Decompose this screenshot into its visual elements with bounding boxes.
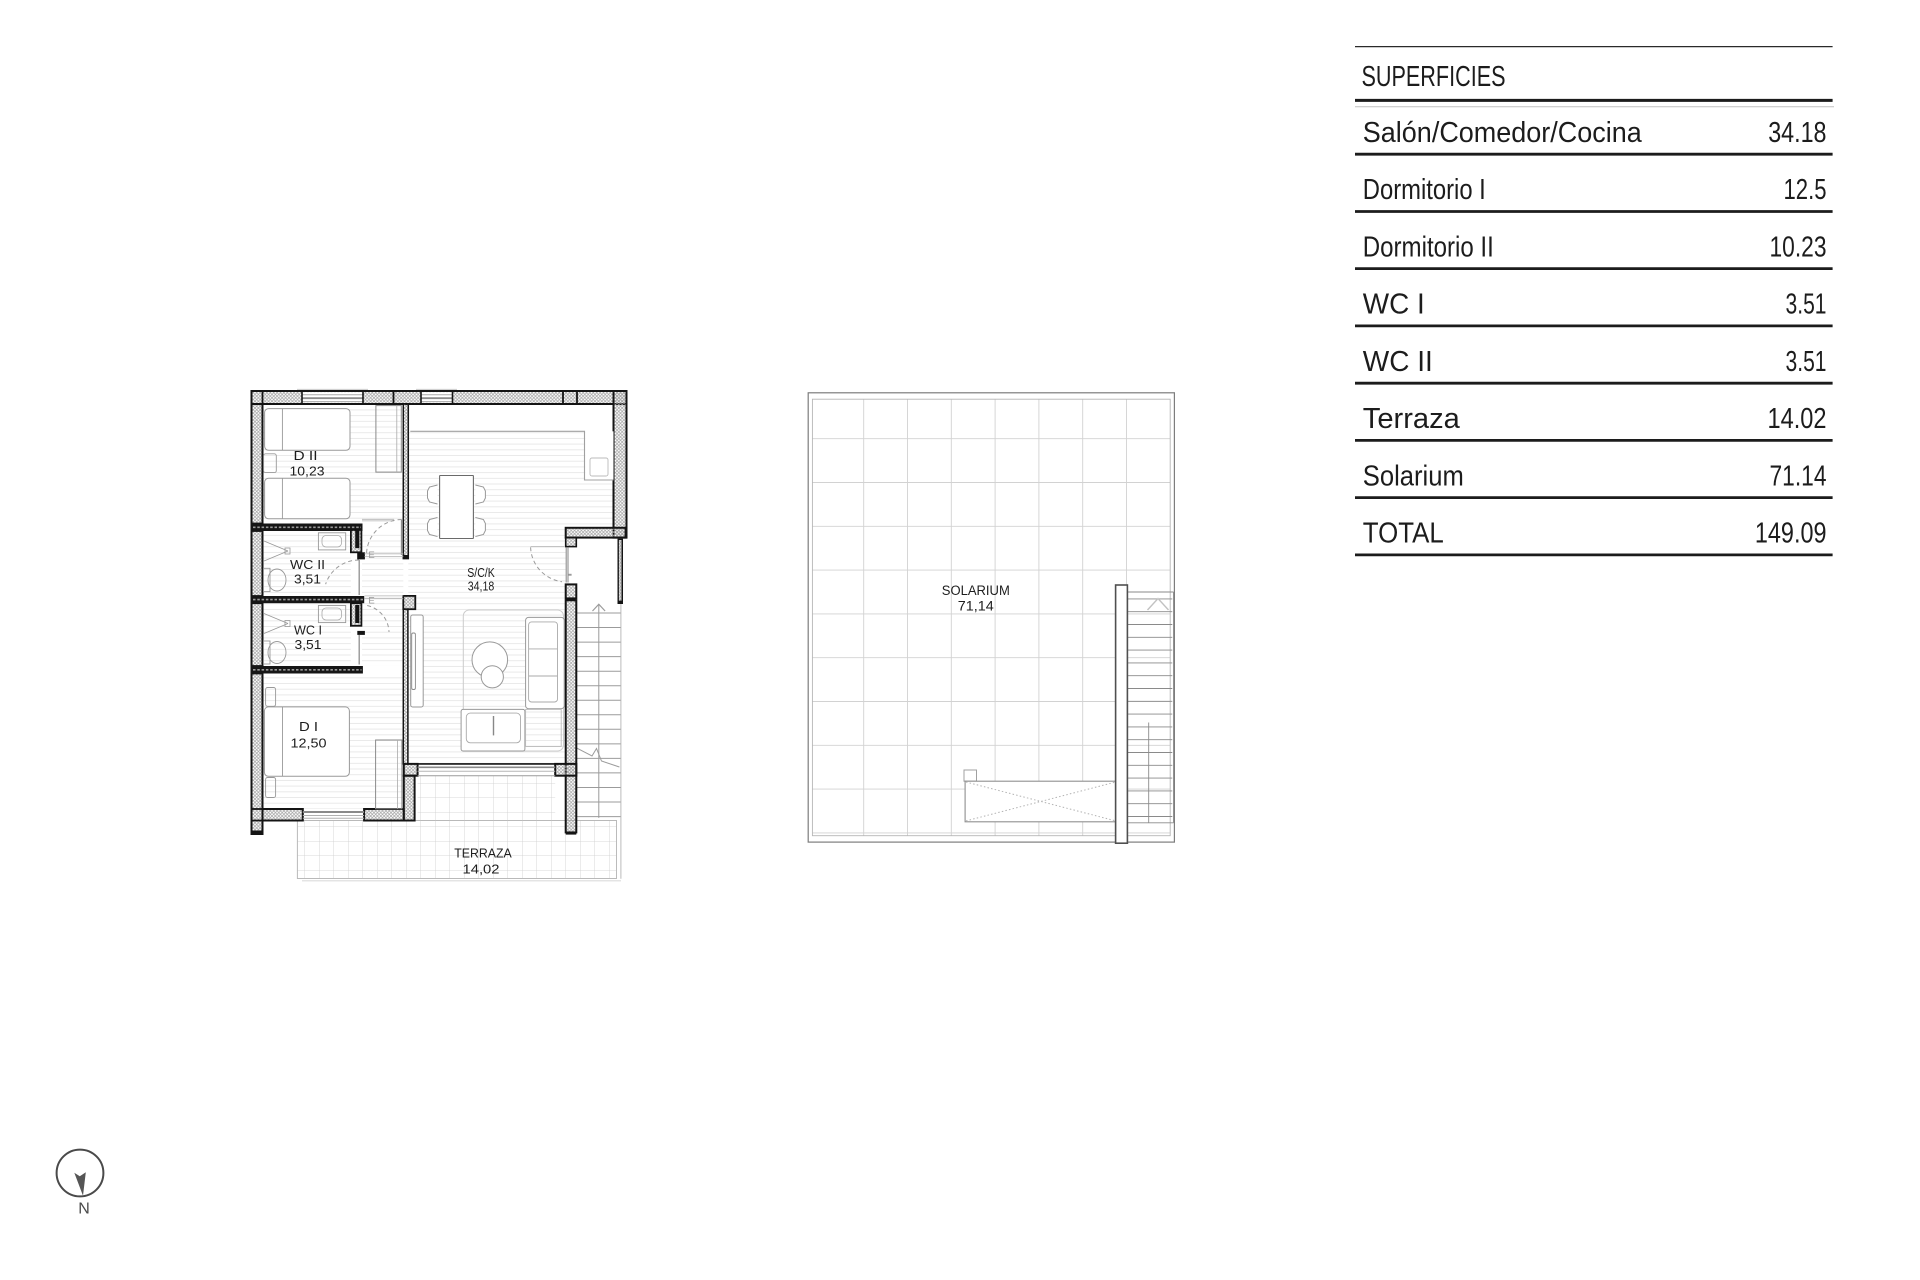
- svg-text:149.09: 149.09: [1755, 518, 1827, 550]
- svg-text:D I: D I: [299, 720, 318, 734]
- svg-text:D II: D II: [294, 449, 318, 463]
- svg-text:10.23: 10.23: [1770, 231, 1827, 263]
- svg-text:TERRAZA: TERRAZA: [454, 847, 512, 861]
- svg-text:E: E: [368, 596, 374, 607]
- svg-text:71.14: 71.14: [1770, 460, 1827, 492]
- svg-text:Salón/Comedor/Cocina: Salón/Comedor/Cocina: [1363, 117, 1643, 149]
- svg-text:3,51: 3,51: [294, 573, 321, 587]
- svg-text:TOTAL: TOTAL: [1363, 518, 1444, 550]
- svg-text:E: E: [368, 550, 374, 561]
- svg-text:12,50: 12,50: [291, 737, 327, 751]
- svg-text:71,14: 71,14: [958, 599, 995, 614]
- svg-text:34,18: 34,18: [468, 580, 495, 594]
- svg-text:Terraza: Terraza: [1363, 403, 1461, 435]
- svg-text:12.5: 12.5: [1784, 174, 1827, 206]
- svg-text:3.51: 3.51: [1786, 289, 1827, 321]
- svg-text:WC I: WC I: [294, 624, 322, 638]
- svg-text:14,02: 14,02: [463, 863, 500, 877]
- svg-text:WC II: WC II: [1363, 346, 1433, 378]
- svg-text:14.02: 14.02: [1768, 403, 1827, 435]
- svg-text:3,51: 3,51: [295, 638, 322, 652]
- svg-text:SOLARIUM: SOLARIUM: [942, 583, 1010, 598]
- svg-text:3.51: 3.51: [1786, 346, 1827, 378]
- svg-text:WC II: WC II: [290, 558, 325, 572]
- svg-text:Solarium: Solarium: [1363, 460, 1464, 492]
- svg-text:34.18: 34.18: [1768, 117, 1826, 149]
- svg-text:10,23: 10,23: [290, 465, 325, 479]
- svg-text:N: N: [78, 1201, 90, 1218]
- svg-text:S/C/K: S/C/K: [467, 566, 495, 580]
- svg-text:WC I: WC I: [1363, 289, 1425, 321]
- svg-text:Dormitorio I: Dormitorio I: [1363, 174, 1486, 206]
- svg-text:SUPERFICIES: SUPERFICIES: [1362, 61, 1506, 93]
- svg-text:Dormitorio II: Dormitorio II: [1363, 231, 1494, 263]
